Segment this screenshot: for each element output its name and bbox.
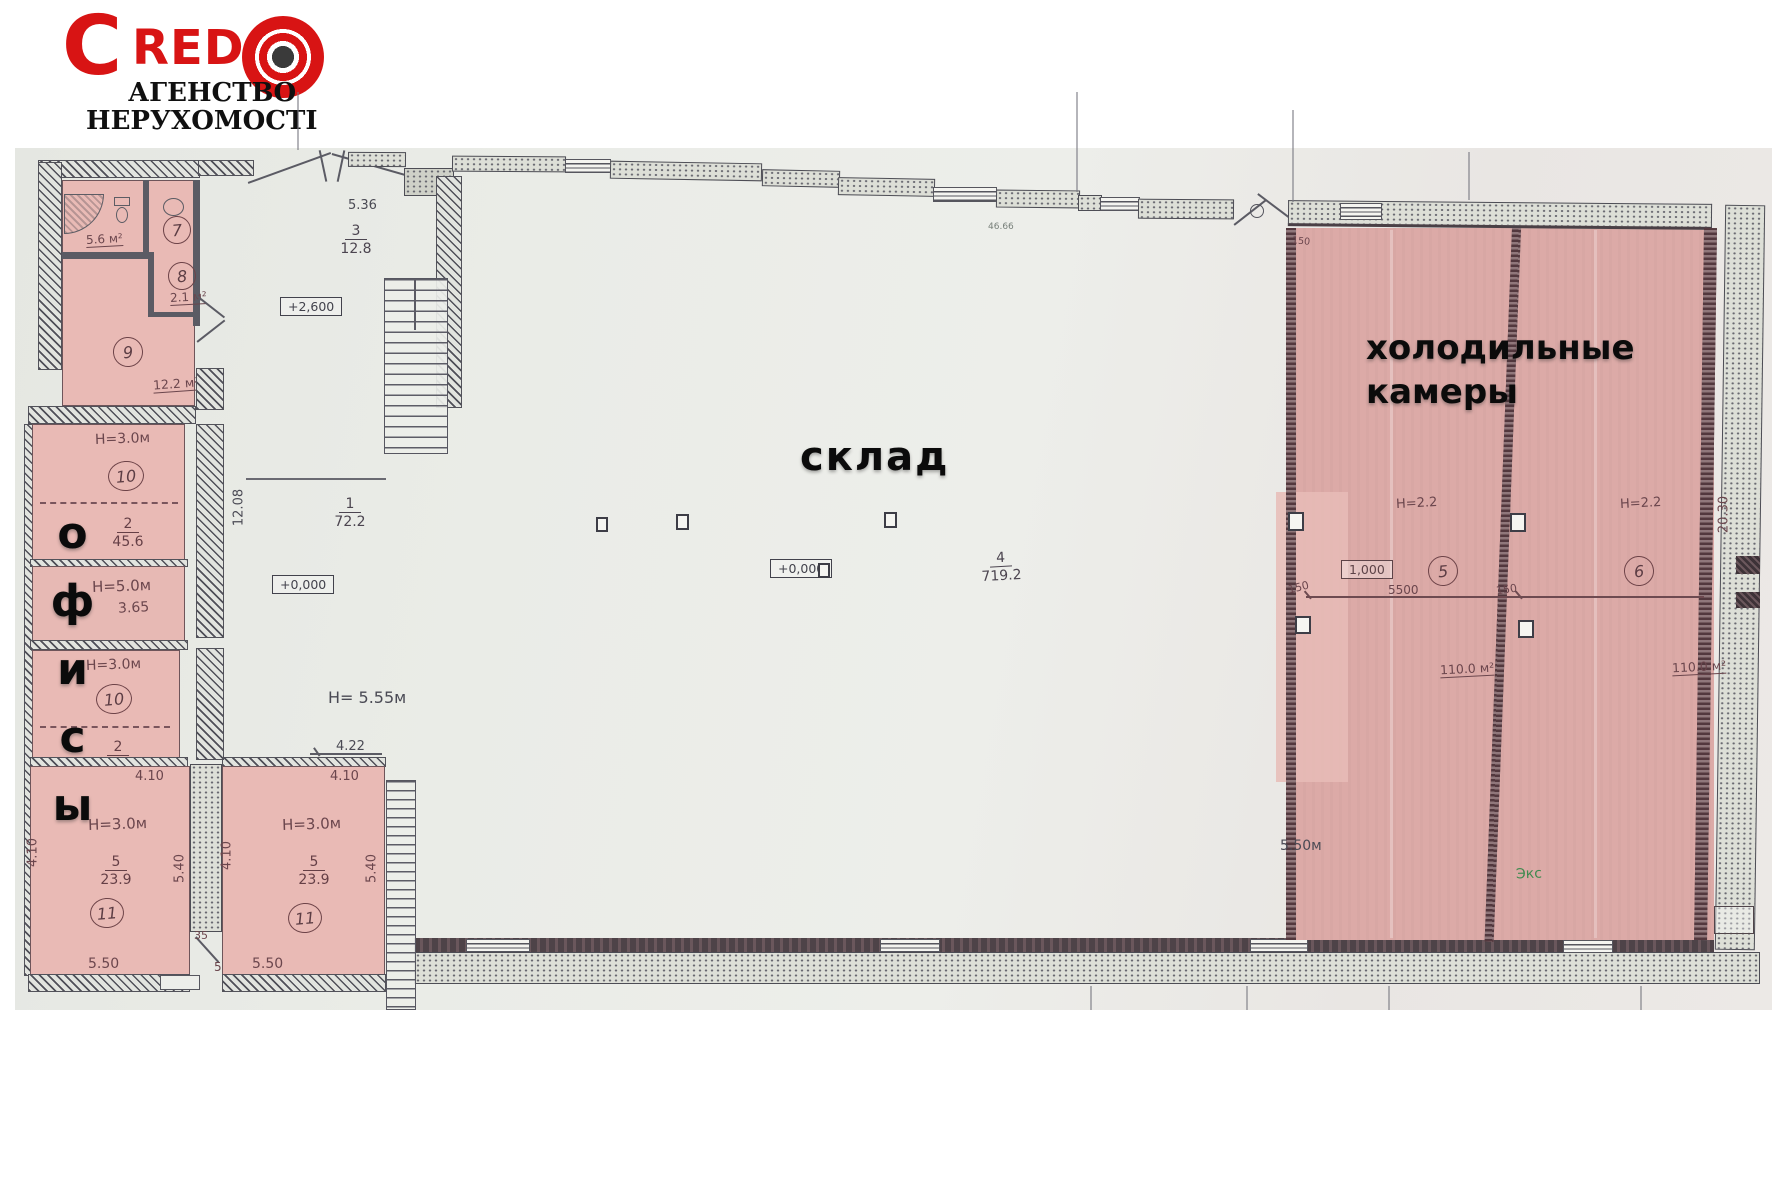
extension-line xyxy=(1076,92,1078,192)
room-number-label: 9 xyxy=(122,342,134,362)
staircase xyxy=(386,780,416,1010)
window xyxy=(880,939,940,952)
wall xyxy=(190,764,222,932)
dimension-label: 5.50 xyxy=(88,956,119,972)
room-ratio-label: 2 xyxy=(100,737,136,756)
extension-line xyxy=(297,92,299,150)
wall xyxy=(198,160,254,176)
wall xyxy=(762,169,840,188)
ratio-denominator: 12.8 xyxy=(326,240,386,257)
dimension-label: 4.10 xyxy=(26,823,41,883)
stair-direction-line xyxy=(414,280,416,330)
room-area-label: 5.6 м² xyxy=(86,231,124,248)
window xyxy=(1340,203,1382,220)
ratio-numerator: 4 xyxy=(989,549,1013,567)
dimension-label: 5.50 xyxy=(252,956,283,972)
room-ratio-label: 3 12.8 xyxy=(326,221,386,257)
room-area-label: 12.2 м² xyxy=(152,374,199,393)
room-ratio-label: 2 45.6 xyxy=(98,514,158,550)
dimension-label: 46.66 xyxy=(988,222,1014,232)
dimension-label: 5.50м xyxy=(1280,838,1322,854)
logo-tagline-line2: НЕРУХОМОСТІ xyxy=(86,106,318,136)
wall-detail xyxy=(1736,592,1760,608)
column-marker xyxy=(1518,620,1534,638)
room-number-label: 7 xyxy=(171,220,183,240)
ratio-numerator: 5 xyxy=(105,854,128,871)
wall xyxy=(222,974,386,992)
ratio-numerator: 2 xyxy=(117,516,140,533)
dimension-label: 5500 xyxy=(1388,583,1419,597)
dimension-line xyxy=(310,753,382,755)
wall xyxy=(196,424,224,638)
room-height-label: Н=3.0м xyxy=(95,430,151,448)
room-number-label: 10 xyxy=(103,689,125,710)
room-number-label: 8 xyxy=(176,266,188,286)
elevation-box: +2,600 xyxy=(280,297,342,316)
dimension-label: 20.30 xyxy=(1717,485,1732,545)
dimension-label: 4.10 xyxy=(330,769,359,784)
zone-label-line2: камеры xyxy=(1366,370,1635,414)
room-number-label: 10 xyxy=(115,466,137,487)
window xyxy=(1563,940,1613,953)
dimension-label: 150 xyxy=(1291,235,1310,248)
ratio-denominator: 45.6 xyxy=(98,533,158,550)
elevation-box: +0,000 xyxy=(272,575,334,594)
wall xyxy=(1078,195,1102,211)
gable-vent-icon xyxy=(1250,204,1264,218)
wall xyxy=(196,648,224,760)
dimension-label: 12.08 xyxy=(232,478,247,538)
column-marker xyxy=(884,512,897,528)
corner-note-box xyxy=(1714,906,1754,934)
ratio-numerator: 5 xyxy=(303,854,326,871)
wall xyxy=(196,368,224,410)
ratio-denominator: 23.9 xyxy=(284,871,344,888)
window xyxy=(565,159,611,173)
staircase xyxy=(384,278,448,454)
room-number-label: 5 xyxy=(1437,561,1449,581)
ratio-denominator: 23.9 xyxy=(86,871,146,888)
ratio-denominator: 719.2 xyxy=(968,565,1035,586)
stair-landing-line xyxy=(246,478,386,480)
toilet-icon xyxy=(114,197,130,206)
wall-detail xyxy=(1736,556,1760,574)
column-marker xyxy=(676,514,689,530)
extension-line xyxy=(1090,986,1092,1010)
ceiling-height-label: Н= 5.55м xyxy=(328,688,406,707)
window xyxy=(160,975,200,990)
column-marker xyxy=(818,563,830,578)
room-height-label: Н=5.0м xyxy=(92,576,152,596)
wall xyxy=(996,190,1080,209)
ratio-numerator: 2 xyxy=(107,739,130,756)
extension-line xyxy=(1292,110,1294,202)
dimension-label: 4.10 xyxy=(220,826,235,886)
wall xyxy=(28,406,196,424)
wall xyxy=(414,938,1714,952)
extension-line xyxy=(1468,152,1470,200)
wall xyxy=(38,162,62,370)
handwritten-note: Экс xyxy=(1516,866,1542,883)
dimension-label: 3.65 xyxy=(118,599,150,617)
room-number-label: 11 xyxy=(294,908,316,929)
room-number-label: 11 xyxy=(96,903,118,924)
logo-letters-red: RED xyxy=(132,24,245,72)
dimension-label: 4.10 xyxy=(135,769,164,784)
floor-plan-page: C RED АГЕНСТВО НЕРУХОМОСТІ 7 5.6 м² 8 2.… xyxy=(0,0,1772,1181)
room-area-label: 110.0 м² xyxy=(1440,660,1495,679)
ratio-denominator: 72.2 xyxy=(318,513,382,530)
room-height-label: Н=2.2 xyxy=(1620,495,1662,512)
dimension-label: 4.22 xyxy=(336,739,365,754)
window xyxy=(466,939,530,952)
window xyxy=(1250,939,1308,952)
zone-label-offices: офисы xyxy=(50,508,94,848)
ratio-numerator: 1 xyxy=(339,496,362,513)
basin-icon xyxy=(163,198,184,216)
ratio-numerator: 3 xyxy=(345,223,368,240)
room-ratio-label: 4 719.2 xyxy=(967,546,1035,586)
wall-thickness-label: 35 xyxy=(194,929,208,942)
dimension-label: 5.40 xyxy=(173,839,188,899)
wall xyxy=(62,252,150,259)
wall xyxy=(610,161,762,182)
partition-dashed-line xyxy=(40,502,178,504)
room-height-label: Н=3.0м xyxy=(282,814,342,834)
zone-label-line1: холодильные xyxy=(1366,326,1635,370)
room-height-label: Н=2.2 xyxy=(1396,495,1438,512)
column-marker xyxy=(1510,513,1526,532)
wall xyxy=(1138,199,1234,220)
room-ratio-label: 5 23.9 xyxy=(284,852,344,888)
logo-letter-c: C xyxy=(62,6,122,88)
window xyxy=(933,187,997,202)
toilet-icon xyxy=(116,207,128,223)
wall xyxy=(38,160,200,178)
foundation-strip xyxy=(414,952,1760,984)
wall xyxy=(148,252,154,314)
column-marker xyxy=(1295,616,1311,634)
elevation-box: 1,000 xyxy=(1341,560,1393,579)
column-marker xyxy=(1288,512,1304,531)
room-ratio-label: 1 72.2 xyxy=(318,494,382,530)
dimension-label: 5.40 xyxy=(365,839,380,899)
room-ratio-label: 5 23.9 xyxy=(86,852,146,888)
extension-line xyxy=(1388,986,1390,1010)
wall xyxy=(838,177,935,197)
wall xyxy=(148,312,195,317)
zone-label-warehouse: склад xyxy=(800,434,949,480)
room-area-label: 110.0 м² xyxy=(1672,658,1727,677)
extension-line xyxy=(1246,986,1248,1010)
wall xyxy=(452,156,566,173)
dimension-label: 5.36 xyxy=(348,198,377,213)
wall xyxy=(143,180,149,256)
zone-label-cold-storage: холодильные камеры xyxy=(1366,326,1635,414)
logo-tagline-line1: АГЕНСТВО xyxy=(128,78,296,108)
wall xyxy=(348,152,406,167)
extension-line xyxy=(1640,986,1642,1010)
agency-logo: C RED АГЕНСТВО НЕРУХОМОСТІ xyxy=(40,0,360,140)
window xyxy=(1100,197,1140,211)
column-marker xyxy=(596,517,608,532)
room-number-label: 6 xyxy=(1633,561,1645,581)
